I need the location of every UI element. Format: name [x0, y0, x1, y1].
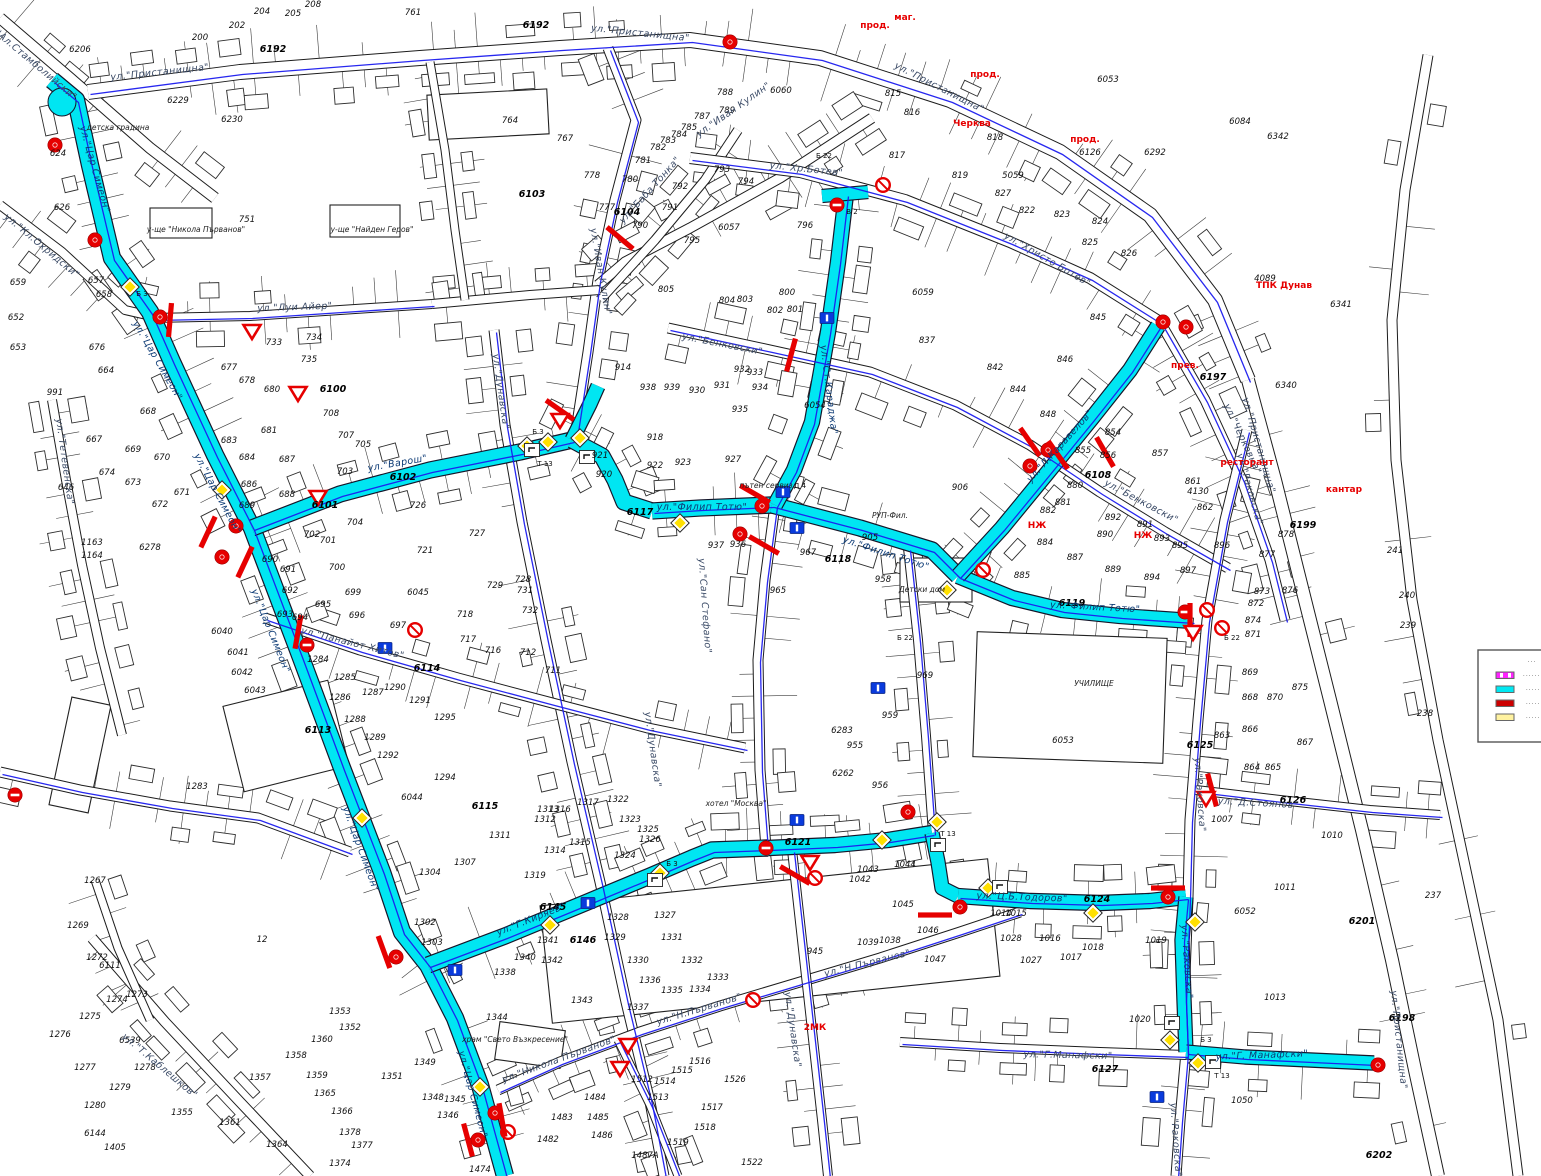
parcel-number: 692: [282, 586, 298, 596]
street-name-label: ул."Филип Тотю": [656, 502, 747, 513]
building-footprint: [781, 319, 798, 336]
street-code: 6102: [390, 472, 417, 483]
parcel-number: 791: [662, 203, 678, 213]
building-footprint: [1154, 1005, 1166, 1024]
parcel-number: 822: [1019, 206, 1035, 216]
parcel-number: 1331: [661, 933, 683, 943]
street-code: 6113: [305, 725, 332, 736]
parcel-number: 842: [987, 363, 1003, 373]
parcel-number: 1486: [591, 1131, 613, 1141]
plate-sign-icon: [1165, 1017, 1180, 1030]
parcel-number: 6040: [211, 627, 233, 637]
parcel-number: 848: [1040, 410, 1057, 420]
info-sign-icon: [871, 683, 885, 694]
building-footprint: [777, 772, 796, 793]
parcel-number: 1164: [81, 551, 103, 561]
parcel-number: 1277: [74, 1063, 96, 1073]
nostop-sign-icon: [876, 178, 890, 192]
building-footprint: [939, 641, 955, 662]
parcel-number: 1344: [486, 1013, 508, 1023]
poi-red-label: НЖ: [1028, 521, 1047, 531]
parcel-number: 896: [1214, 541, 1231, 551]
parcel-number: 1303: [421, 938, 443, 948]
building-footprint: [1146, 865, 1176, 885]
noentry-sign-icon: [830, 198, 844, 212]
poi-red-label: маг.: [894, 13, 916, 23]
parcel-number: 1366: [331, 1107, 353, 1117]
parcel-number: 6041: [227, 648, 249, 658]
parcel-number: 658: [96, 290, 113, 300]
nostop-sign-icon: [1215, 621, 1229, 635]
legend-item-label: ·······: [1526, 715, 1541, 722]
parcel-number: 867: [1297, 738, 1314, 748]
parcel-number: 1337: [627, 1003, 649, 1013]
parcel-number: 856: [1100, 451, 1117, 461]
building-footprint: [48, 531, 66, 551]
parcel-number: 6060: [770, 86, 792, 96]
parcel-number: 1007: [1211, 815, 1233, 825]
building-footprint: [711, 813, 740, 830]
building-footprint: [776, 191, 799, 209]
parcel-number: 1020: [1129, 1015, 1151, 1025]
parcel-number: 1474: [469, 1165, 491, 1175]
parcel-number: 893: [1154, 534, 1170, 544]
building-footprint: [735, 772, 748, 798]
parcel-number: 936: [730, 540, 747, 550]
building-footprint: [538, 772, 558, 792]
poi-red-label: 2МК: [804, 1023, 827, 1033]
parcel-number: 780: [622, 175, 638, 185]
parcel-number: 819: [952, 171, 968, 181]
parcel-number: 876: [1282, 586, 1299, 596]
building-footprint: [1365, 413, 1381, 431]
parcel-number: 1360: [311, 1035, 333, 1045]
sign-code-label: В 2: [846, 208, 857, 216]
parcel-number: 1010: [1321, 831, 1343, 841]
building-footprint: [937, 740, 948, 757]
parcel-number: 965: [770, 586, 786, 596]
parcel-number: 6278: [139, 543, 161, 553]
parcel-number: 703: [337, 467, 353, 477]
parcel-number: 208: [305, 0, 322, 10]
parcel-number: 871: [1245, 630, 1261, 640]
parcel-number: 676: [89, 343, 106, 353]
parcel-number: 1016: [1039, 934, 1061, 944]
parcel-number: 1518: [694, 1123, 716, 1133]
parcel-number: 6229: [167, 96, 189, 106]
poi-red-label: Черква: [953, 119, 991, 129]
building-footprint: [786, 1080, 798, 1101]
parcel-number: 1377: [351, 1141, 373, 1151]
parcel-number: 1267: [84, 876, 106, 886]
street-code: 6197: [1200, 372, 1227, 383]
building-footprint: [89, 62, 109, 77]
building-footprint: [1512, 1024, 1527, 1040]
parcel-number: 716: [485, 646, 502, 656]
parcel-number: 959: [882, 711, 898, 721]
parcel-number: 733: [266, 338, 282, 348]
parcel-number: 624: [50, 149, 66, 159]
building-footprint: [464, 73, 494, 85]
parcel-number: 1283: [186, 782, 208, 792]
parcel-number: 6054: [804, 401, 826, 411]
parcel-number: 824: [1092, 217, 1108, 227]
parcel-number: 6045: [407, 588, 429, 598]
building-footprint: [432, 281, 450, 301]
parcel-number: 1364: [266, 1140, 288, 1150]
building-footprint: [905, 1013, 926, 1024]
building-footprint: [852, 315, 870, 332]
parcel-number: 885: [1014, 571, 1030, 581]
nostop-sign-icon: [746, 993, 760, 1007]
parcel-number: 891: [1137, 520, 1153, 530]
parcel-number: 1516: [689, 1057, 711, 1067]
parcel-number: 1291: [409, 696, 431, 706]
parcel-number: 202: [229, 21, 245, 31]
sign-code-label: Б 3: [532, 428, 543, 436]
parcel-number: 680: [264, 385, 280, 395]
parcel-number: 1042: [849, 875, 871, 885]
parcel-number: 875: [1292, 683, 1308, 693]
parcel-number: 1279: [109, 1083, 131, 1093]
building-footprint: [857, 246, 872, 263]
building-footprint: [655, 701, 676, 721]
building-footprint: [948, 1060, 965, 1071]
parcel-number: 805: [658, 285, 674, 295]
parcel-number: 877: [1259, 550, 1276, 560]
building-footprint: [527, 737, 547, 756]
building-footprint: [1126, 586, 1146, 597]
parcel-number: 626: [54, 203, 71, 213]
parcel-number: 1288: [344, 715, 366, 725]
parcel-number: 1352: [339, 1023, 361, 1033]
building-footprint: [218, 39, 241, 58]
parcel-number: 1019: [1145, 936, 1167, 946]
parcel-number: 1355: [171, 1108, 193, 1118]
parcel-number: 1336: [639, 976, 661, 986]
parcel-number: 693: [277, 610, 293, 620]
sign-code-label: Т 13: [1213, 1072, 1229, 1080]
parcel-number: 652: [8, 313, 24, 323]
parcel-number: 711: [545, 666, 561, 676]
parcel-number: 1312: [534, 815, 556, 825]
parcel-number: 788: [717, 88, 734, 98]
parcel-number: 731: [517, 586, 533, 596]
building-footprint: [1371, 786, 1400, 797]
parcel-number: 1285: [334, 673, 356, 683]
parcel-number: 6340: [1275, 381, 1297, 391]
nostop-sign-icon: [1200, 603, 1214, 617]
poi-black-label: у-ще "Никола Първанов": [146, 225, 245, 234]
parcel-number: 6283: [831, 726, 853, 736]
building-footprint: [244, 94, 268, 110]
street-code: 6124: [1084, 894, 1111, 905]
building-footprint: [513, 72, 535, 90]
info-sign-icon: [790, 815, 804, 826]
parcel-number: 1163: [81, 538, 103, 548]
building-footprint: [422, 153, 437, 179]
parcel-number: 914: [615, 363, 631, 373]
legend-title-dots: ···: [1528, 659, 1537, 666]
parcel-number: 696: [349, 611, 366, 621]
parcel-number: 1378: [339, 1128, 361, 1138]
parcel-number: 700: [329, 563, 345, 573]
parcel-number: 764: [502, 116, 518, 126]
building-footprint: [510, 375, 526, 396]
building-footprint: [1418, 781, 1441, 795]
parcel-number: 6053: [1052, 736, 1074, 746]
parcel-number: 678: [239, 376, 256, 386]
parcel-number: 920: [596, 470, 612, 480]
building-footprint: [894, 688, 909, 711]
parcel-number: 237: [1425, 891, 1442, 901]
parcel-number: 673: [125, 478, 141, 488]
building-footprint: [516, 329, 533, 352]
parcel-number: 657: [88, 276, 105, 286]
parcel-number: 6059: [912, 288, 934, 298]
parcel-number: 697: [390, 621, 407, 631]
street-code: 6101: [312, 500, 338, 511]
legend-item-label: ·········: [1523, 673, 1541, 680]
building-footprint: [1247, 1032, 1272, 1047]
parcel-number: 794: [738, 177, 754, 187]
parcel-number: 6144: [84, 1129, 106, 1139]
parcel-number: 969: [917, 671, 933, 681]
parcel-number: 945: [807, 947, 823, 957]
building-footprint: [810, 239, 823, 259]
parcel-number: 1345: [444, 1095, 466, 1105]
parcel-number: 721: [417, 546, 433, 556]
parcel-number: 1485: [587, 1113, 609, 1123]
building-footprint: [1000, 1063, 1027, 1076]
building-footprint: [580, 199, 598, 219]
building-footprint: [1050, 1018, 1068, 1033]
legend: ·································: [1478, 650, 1541, 742]
parcel-number: 863: [1214, 731, 1230, 741]
parcel-number: 868: [1242, 693, 1259, 703]
parcel-number: 1515: [671, 1066, 693, 1076]
building-footprint: [434, 322, 462, 341]
parcel-number: 1311: [489, 831, 511, 841]
sign-code-label: Б 3: [666, 860, 677, 868]
parcel-number: 935: [732, 405, 748, 415]
parcel-number: 684: [239, 453, 255, 463]
stop-sign-icon: [215, 550, 229, 564]
building-footprint: [62, 176, 78, 193]
parcel-number: 1338: [494, 968, 516, 978]
parcel-number: 870: [1267, 693, 1283, 703]
parcel-number: 1357: [249, 1073, 271, 1083]
parcel-number: 672: [152, 500, 168, 510]
building-footprint: [658, 527, 677, 537]
building-footprint: [1107, 916, 1122, 932]
parcel-number: 790: [632, 221, 648, 231]
parcel-number: 927: [725, 455, 742, 465]
parcel-number: 1342: [541, 956, 563, 966]
parcel-number: 846: [1057, 355, 1074, 365]
poi-black-label: храм "Свето Възкресение": [461, 1035, 568, 1044]
building-footprint: [1002, 1023, 1027, 1036]
building-footprint: [1202, 1097, 1214, 1127]
parcel-number: 934: [752, 383, 768, 393]
poi-black-label: Детски дом: [898, 585, 946, 594]
parcel-number: 687: [279, 455, 296, 465]
parcel-number: 1513: [647, 1093, 669, 1103]
parcel-number: 729: [487, 581, 503, 591]
street-code: 6125: [1187, 740, 1214, 751]
parcel-number: 890: [1097, 530, 1113, 540]
parcel-number: 921: [592, 451, 608, 461]
building-footprint: [535, 268, 550, 281]
parcel-number: 751: [239, 215, 255, 225]
parcel-number: 683: [221, 436, 237, 446]
parcel-number: 6044: [401, 793, 423, 803]
parcel-number: 1315: [569, 838, 591, 848]
parcel-number: 1011: [1274, 883, 1296, 893]
poi-black-label: детска градина: [86, 123, 150, 132]
parcel-number: 864: [1244, 763, 1260, 773]
city-map-canvas[interactable]: 2002022042052086206622962307516246266596…: [0, 0, 1541, 1176]
parcel-number: 667: [86, 435, 103, 445]
parcel-number: 804: [719, 296, 735, 306]
parcel-number: 1341: [537, 936, 559, 946]
sign-code-label: Т 13: [536, 460, 552, 468]
parcel-number: 1289: [364, 733, 386, 743]
building-footprint: [835, 820, 861, 833]
sign-code-label: Б 22: [1224, 634, 1240, 642]
building-footprint: [1200, 1002, 1212, 1025]
building-footprint: [792, 1126, 810, 1146]
parcel-number: 238: [1417, 709, 1434, 719]
poi-black-label: у-ще "Найден Геров": [330, 225, 414, 234]
street-code: 6127: [1092, 1064, 1119, 1075]
parcel-number: 1328: [607, 913, 629, 923]
parcel-number: 705: [355, 440, 371, 450]
building-footprint: [728, 577, 745, 607]
parcel-number: 1349: [414, 1058, 436, 1068]
parcel-number: 955: [847, 741, 863, 751]
parcel-number: 1273: [126, 990, 148, 1000]
street-code: 6115: [472, 801, 499, 812]
parcel-number: 239: [1400, 621, 1416, 631]
parcel-number: 1287: [362, 688, 384, 698]
parcel-number: 1316: [549, 805, 571, 815]
parcel-number: 4130: [1187, 487, 1209, 497]
building-footprint: [556, 323, 575, 346]
building-footprint: [1358, 1029, 1380, 1043]
parcel-number: 767: [557, 134, 574, 144]
parcel-number: 1017: [1060, 953, 1082, 963]
building-footprint: [196, 331, 224, 347]
sign-code-label: Б 22: [897, 634, 913, 642]
parcel-number: 669: [125, 445, 141, 455]
parcel-number: 796: [797, 221, 814, 231]
street-code: 6201: [1349, 916, 1375, 927]
plate-sign-icon: [931, 839, 946, 852]
poi-black-label: УЧИЛИЩЕ: [1074, 679, 1114, 688]
parcel-number: 6230: [221, 115, 243, 125]
building-footprint: [1141, 1117, 1160, 1146]
parcel-number: 873: [1254, 587, 1270, 597]
parcel-number: 938: [640, 383, 657, 393]
parcel-number: 717: [460, 635, 477, 645]
parcel-number: 1526: [724, 1075, 746, 1085]
parcel-number: 1317: [577, 798, 599, 808]
info-sign-icon: [790, 523, 804, 534]
parcel-number: 880: [1067, 481, 1083, 491]
building-footprint: [1215, 665, 1231, 694]
building-footprint: [1427, 104, 1446, 127]
parcel-number: 205: [285, 9, 301, 19]
noentry-sign-icon: [8, 788, 22, 802]
parcel-number: 1483: [551, 1113, 573, 1123]
poi-red-label: ТПК Дунав: [1256, 281, 1312, 291]
parcel-number: 1322: [607, 795, 629, 805]
parcel-number: 918: [647, 433, 664, 443]
stop-sign-icon: [88, 233, 102, 247]
nostop-sign-icon: [408, 623, 422, 637]
parcel-number: 727: [469, 529, 486, 539]
cadastral-map-window: 2002022042052086206622962307516246266596…: [0, 0, 1541, 1176]
info-sign-icon: [581, 898, 595, 909]
parcel-number: 732: [522, 606, 538, 616]
parcel-number: 695: [315, 600, 331, 610]
parcel-number: 781: [635, 156, 651, 166]
stop-sign-icon: [1179, 320, 1193, 334]
street-code: 6199: [1290, 520, 1317, 531]
building-footprint: [1166, 641, 1186, 654]
parcel-number: 861: [1185, 477, 1201, 487]
parcel-number: 967: [800, 548, 817, 558]
parcel-number: 854: [1105, 428, 1121, 438]
building-footprint: [885, 598, 901, 617]
stop-sign-icon: [153, 310, 167, 324]
legend-swatch-3: [1496, 714, 1514, 721]
street-code: 6118: [825, 554, 852, 565]
poi-red-label: кантар: [1326, 485, 1363, 495]
parcel-number: 792: [672, 182, 688, 192]
poi-black-label: хотел "Москва": [705, 799, 767, 808]
parcel-number: 1280: [84, 1101, 106, 1111]
street-code: 6117: [627, 507, 654, 518]
parcel-number: 681: [261, 426, 277, 436]
building-footprint: [848, 342, 861, 360]
building-footprint: [952, 1008, 968, 1026]
parcel-number: 6206: [69, 45, 91, 55]
sign-code-label: Б 3: [1200, 1036, 1211, 1044]
street-code: 6146: [570, 935, 597, 946]
sign-code-label: Д 4: [794, 482, 807, 490]
parcel-number: 1327: [654, 911, 676, 921]
stop-sign-icon: [1156, 315, 1170, 329]
parcel-number: 1374: [329, 1159, 351, 1169]
parcel-number: 895: [1172, 541, 1188, 551]
parcel-number: 1324: [614, 851, 636, 861]
parcel-number: 874: [1245, 616, 1261, 626]
parcel-number: 6043: [244, 686, 266, 696]
parcel-number: 704: [347, 518, 363, 528]
parcel-number: 991: [47, 388, 63, 398]
parcel-number: 815: [885, 89, 901, 99]
noentry-sign-icon: [300, 638, 314, 652]
parcel-number: 204: [254, 7, 270, 17]
parcel-number: 1329: [604, 933, 626, 943]
street-code: 6103: [519, 189, 546, 200]
parcel-number: 664: [98, 366, 114, 376]
legend-swatch-2: [1496, 700, 1514, 707]
parcel-number: 1323: [619, 815, 641, 825]
parcel-number: 1522: [741, 1158, 763, 1168]
